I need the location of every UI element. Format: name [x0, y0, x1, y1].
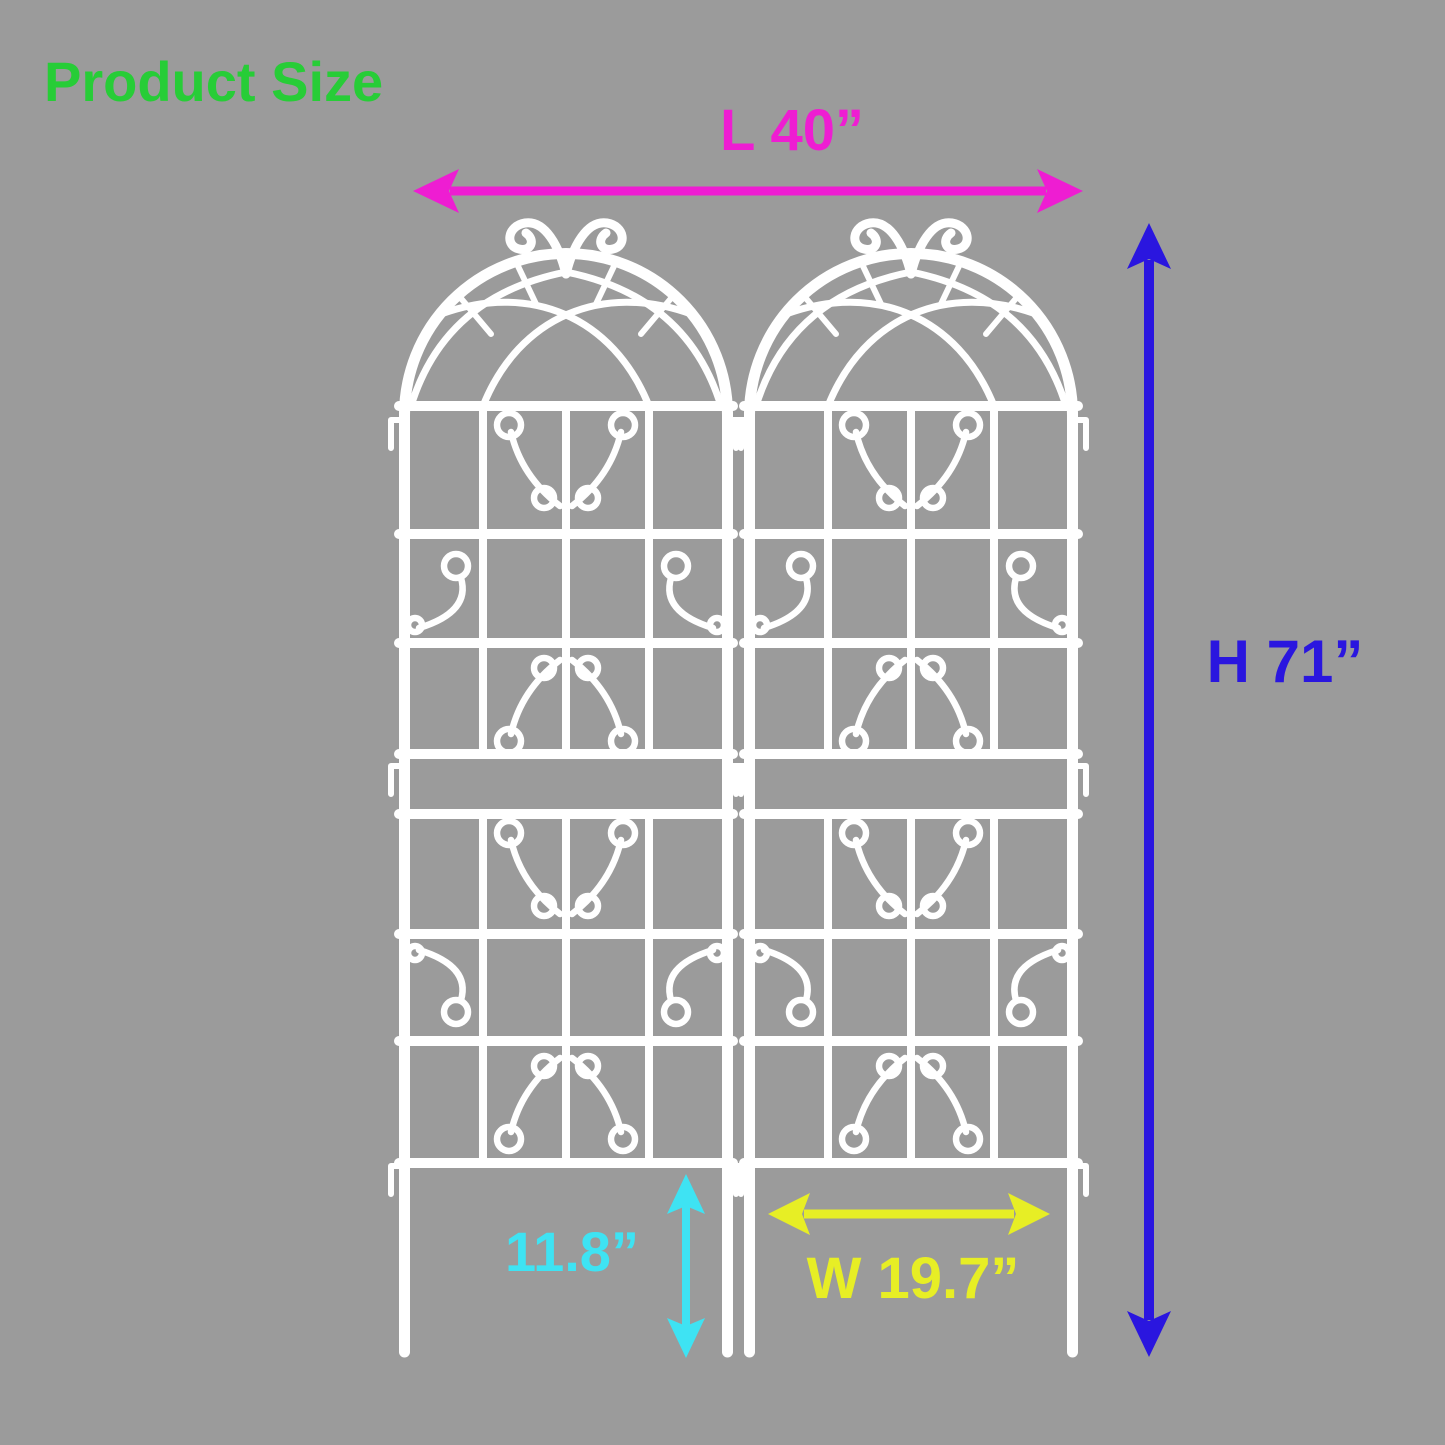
- panel-width-arrow: [768, 1193, 1050, 1235]
- product-size-diagram: Product Size L 40” H 71” 11.8” W 19.7”: [0, 0, 1445, 1445]
- trellis-panel-right: [736, 223, 1086, 1352]
- length-arrow: [413, 169, 1083, 213]
- diagram-art: [0, 0, 1445, 1445]
- length-dimension-label: L 40”: [720, 102, 864, 160]
- height-dimension-label: H 71”: [1207, 632, 1364, 692]
- height-arrow: [1127, 223, 1171, 1357]
- panel-width-dimension-label: W 19.7”: [807, 1250, 1020, 1308]
- leg-height-dimension-label: 11.8”: [505, 1224, 639, 1280]
- leg-height-arrow: [667, 1174, 705, 1358]
- page-title: Product Size: [44, 54, 383, 110]
